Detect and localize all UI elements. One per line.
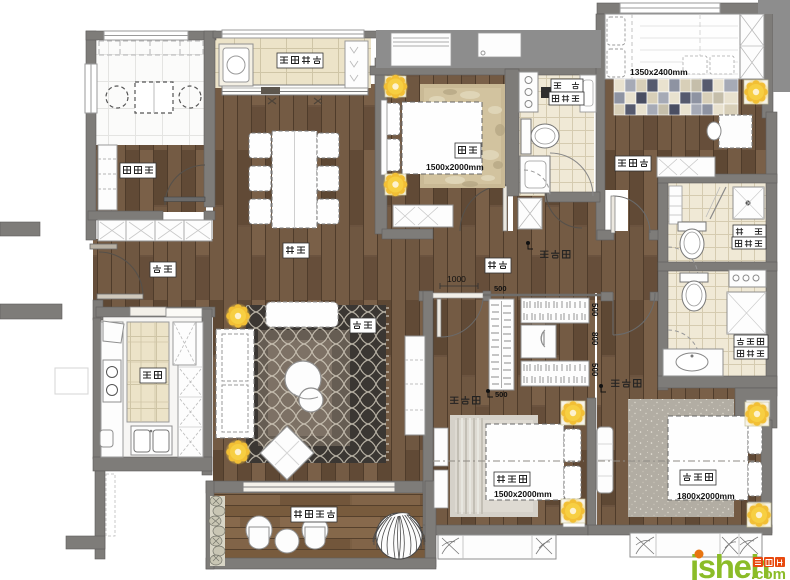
svg-text:500: 500 [590, 303, 599, 317]
svg-text:800: 800 [590, 332, 599, 346]
svg-text:1800x2000mm: 1800x2000mm [677, 491, 735, 501]
svg-text:500: 500 [495, 390, 508, 399]
svg-text:1350x2400mm: 1350x2400mm [630, 67, 688, 77]
svg-text:500: 500 [494, 284, 507, 293]
svg-text:.com: .com [751, 566, 786, 580]
svg-text:1000: 1000 [447, 274, 466, 284]
svg-text:1500x2000mm: 1500x2000mm [494, 489, 552, 499]
svg-text:500: 500 [590, 363, 599, 377]
svg-text:1500x2000mm: 1500x2000mm [426, 162, 484, 172]
